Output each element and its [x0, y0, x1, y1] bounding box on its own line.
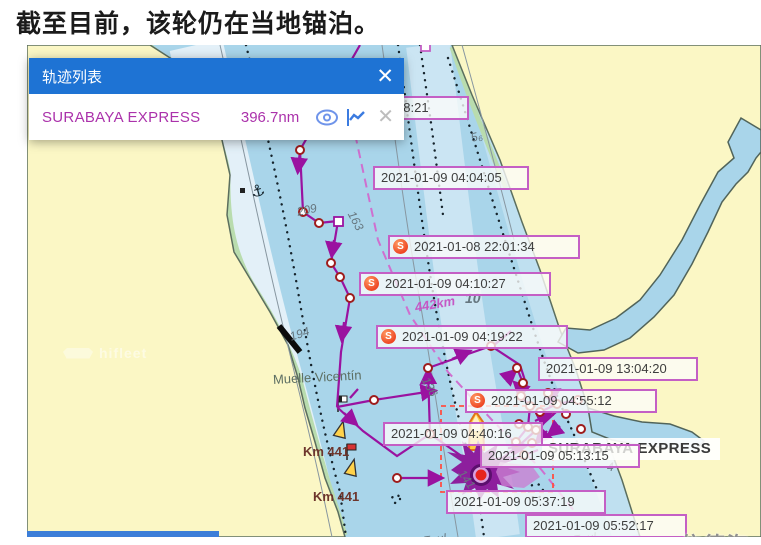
track-timestamp-label[interactable]: 2021-01-09 04:04:05 — [373, 166, 529, 190]
timestamp-text: 2021-01-09 04:04:05 — [381, 170, 502, 185]
brand-watermark: 信德海事 — [645, 529, 761, 537]
panel-header: 轨迹列表 ✕ — [29, 58, 404, 94]
timestamp-text: 2021-01-09 04:10:27 — [385, 276, 506, 291]
timestamp-text: 2021-01-09 05:13:15 — [488, 448, 609, 463]
track-timestamp-label[interactable]: S2021-01-09 04:55:12 — [465, 389, 657, 413]
page-title: 截至目前，该轮仍在当地锚泊。 — [16, 4, 380, 40]
track-timestamp-label[interactable]: S2021-01-09 04:10:27 — [359, 272, 551, 296]
remove-track-icon[interactable]: ✕ — [377, 107, 394, 127]
vessel-row: SURABAYA EXPRESS 396.7nm ✕ — [29, 94, 404, 140]
event-s-icon: S — [393, 239, 408, 254]
map-scale-bar — [27, 531, 219, 537]
screenshot-root: 截至目前，该轮仍在当地锚泊。 — [0, 0, 761, 545]
track-timestamp-label[interactable]: 2021-01-09 13:04:20 — [538, 357, 698, 381]
track-list-panel: 轨迹列表 ✕ SURABAYA EXPRESS 396.7nm ✕ — [29, 58, 404, 140]
track-timestamp-label[interactable]: 2021-01-09 05:13:15 — [480, 444, 640, 468]
timestamp-text: 2021-01-09 05:52:17 — [533, 518, 654, 533]
eye-icon[interactable] — [315, 109, 339, 126]
chart-text: Km 441 — [303, 444, 349, 459]
timestamp-text: 2021-01-08 22:01:34 — [414, 239, 535, 254]
timestamp-text: 2021-01-09 04:55:12 — [491, 393, 612, 408]
timestamp-text: 2021-01-09 04:40:16 — [391, 426, 512, 441]
boat-logo-icon — [63, 348, 93, 359]
event-s-icon: S — [364, 276, 379, 291]
vessel-name[interactable]: SURABAYA EXPRESS — [42, 109, 241, 126]
track-timestamp-label[interactable]: S2021-01-08 22:01:34 — [388, 235, 580, 259]
track-timestamp-label[interactable]: 2021-01-09 04:40:16 — [383, 422, 543, 446]
chart-text: 5₆ — [469, 128, 484, 145]
panel-title: 轨迹列表 — [42, 66, 376, 87]
event-s-icon: S — [381, 329, 396, 344]
timestamp-text: 2021-01-09 05:37:19 — [454, 494, 575, 509]
close-icon[interactable]: ✕ — [376, 66, 394, 87]
timestamp-text: 2021-01-09 13:04:20 — [546, 361, 667, 376]
track-distance: 396.7nm — [241, 109, 299, 126]
map-provider-watermark: hifleet — [63, 345, 147, 361]
track-timestamp-label[interactable]: 2021-01-09 05:37:19 — [446, 490, 606, 514]
track-timestamp-label[interactable]: S2021-01-09 04:19:22 — [376, 325, 568, 349]
timestamp-text: 2021-01-09 04:19:22 — [402, 329, 523, 344]
chart-text: Km 441 — [313, 489, 359, 504]
line-chart-icon[interactable] — [345, 108, 367, 127]
event-s-icon: S — [470, 393, 485, 408]
